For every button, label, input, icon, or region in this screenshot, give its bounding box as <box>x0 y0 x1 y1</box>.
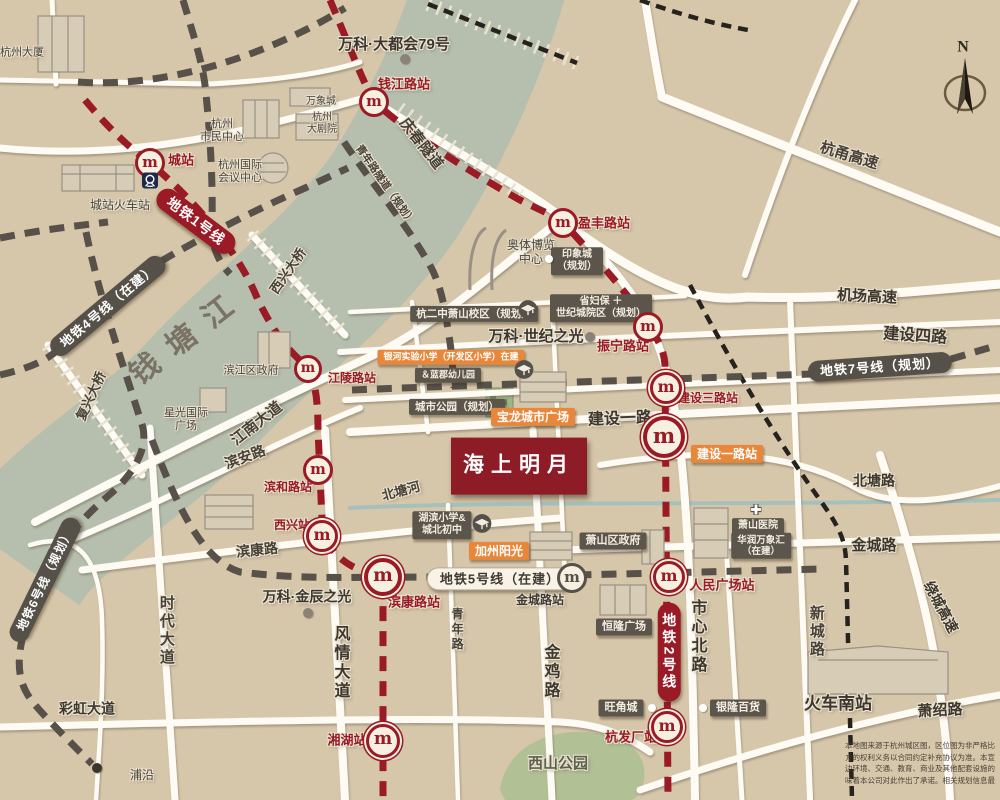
station-icon-qianjianglu: m <box>359 87 389 117</box>
metro-logo-glyph: m <box>142 155 158 170</box>
renmin-square-station-label: 人民广场站 <box>689 577 754 592</box>
wangjiaocheng-box: 旺角城 <box>599 700 644 717</box>
south-railway-station-label: 火车南站 <box>804 694 872 714</box>
caihong-avenue-label: 彩虹大道 <box>59 701 115 718</box>
binhe-station-label: 滨和路站 <box>264 480 312 494</box>
xincheng-road-label: 新城路 <box>807 605 825 659</box>
metro-logo-glyph: m <box>313 527 330 543</box>
station-icon-hangfachang: m <box>651 711 683 743</box>
poi-dot-wangjiaocheng <box>648 704 656 712</box>
yinhe-school-box: 银河实验小学（开发区小学）在建 <box>377 350 524 365</box>
metro-logo-glyph: m <box>657 379 674 395</box>
huarun-mixc-box: 华润万象汇 （在建） <box>731 533 791 559</box>
jianshe-1-road-label: 建设一路 <box>588 409 653 430</box>
station-icon-binhelu: m <box>303 455 333 485</box>
henglong-plaza-box: 恒隆广场 <box>596 619 652 636</box>
fengqing-avenue-label: 风情大道 <box>330 625 349 701</box>
metro-logo-glyph: m <box>374 731 392 748</box>
metro-logo-glyph: m <box>564 570 580 585</box>
shixin-north-road-label: 市心北路 <box>687 599 706 675</box>
beitang-road-label: 北塘路 <box>853 473 895 490</box>
station-icon-jianshesanlu: m <box>650 372 682 404</box>
intl-conference-label: 杭州国际 会议中心 <box>218 159 262 185</box>
xishan-park-label: 西山公园 <box>528 755 588 773</box>
compass-n-label: N <box>957 39 969 58</box>
jianshe-3-station-label: 建设三路站 <box>678 391 738 405</box>
metro-logo-glyph: m <box>366 94 382 109</box>
station-icon-xianghu: m <box>366 724 400 758</box>
yinxiangcheng-box: 印象城 （规划） <box>551 247 603 275</box>
station-icon-xixing: m <box>306 520 338 552</box>
chengzhan-station-label: 城站 <box>168 152 194 167</box>
mixc-label: 万象城 <box>306 96 336 108</box>
jinji-road-label: 金鸡路 <box>540 644 559 701</box>
line5-pill: 地铁5号线（在建） <box>427 567 573 590</box>
vanke-jinchen-label: 万科·金辰之光 <box>263 589 352 606</box>
jianshe-1-station-box: 建设一路站 <box>691 445 763 463</box>
hubin-school-box: 湖滨小学& 城北初中 <box>412 511 471 539</box>
railway-station-icon <box>142 173 158 194</box>
map-canvas: 杭州大厦城站城站火车站杭州 市民中心万象城杭州 大剧院杭州国际 会议中心万科·大… <box>0 0 1000 800</box>
vanke-century-label: 万科·世纪之光 <box>489 328 584 346</box>
compass-icon <box>945 58 985 114</box>
citizen-center-label: 杭州 市民中心 <box>200 118 244 144</box>
station-icon-binkanglu: m <box>364 558 402 596</box>
yingfeng-station-label: 盈丰路站 <box>578 215 630 230</box>
lanjun-kindergarten-box: ＆蓝郡幼儿园 <box>415 368 481 383</box>
station-icon-jiansheyilu: m <box>643 416 685 458</box>
xianghu-station-label: 湘湖站 <box>327 732 366 747</box>
chengzhan-railway-label: 城站火车站 <box>90 198 150 212</box>
baolong-plaza-box: 宝龙城市广场 <box>491 408 575 426</box>
poi-dot-vanke-metropolis <box>400 54 410 64</box>
yinlong-store-box: 银隆百货 <box>710 700 766 717</box>
project-name-box: 海上明月 <box>451 438 587 495</box>
metro-logo-glyph: m <box>301 362 315 376</box>
jincheng-road-label: 金城路 <box>851 537 896 555</box>
metro-logo-glyph: m <box>653 425 675 446</box>
metro-logo-glyph: m <box>658 718 675 734</box>
puyan-label: 浦沿 <box>130 768 154 782</box>
poi-dot-aoti <box>545 255 553 263</box>
poi-dot-yinlong <box>699 704 707 712</box>
metro-logo-glyph: m <box>310 462 326 477</box>
metro-logo-glyph: m <box>373 567 393 586</box>
metro-logo-glyph: m <box>555 215 571 230</box>
xiaoshan-government-box: 萧山区政府 <box>580 533 647 550</box>
xixing-station-label: 西兴站 <box>274 518 310 532</box>
california-sunshine-box: 加州阳光 <box>469 542 529 560</box>
qingnian-road-label: 青年路 <box>450 608 464 653</box>
xiaoshao-road-label: 萧绍路 <box>917 701 963 721</box>
station-icon-yingfenglu: m <box>548 208 578 238</box>
shidai-avenue-label: 时代大道 <box>157 595 175 667</box>
poi-dot-puyan <box>92 763 102 773</box>
metro-logo-glyph: m <box>640 319 656 334</box>
poi-dot-vanke-century <box>585 332 595 342</box>
jiangling-station-label: 江陵路站 <box>328 371 376 385</box>
station-icon-zhenninglu: m <box>633 312 663 342</box>
binjiang-government-label: 滨江区政府 <box>224 365 279 378</box>
disclaimer-text: 本地图来源于杭州城区图，区位图为非严格比 方的权利义务以合同约定补充协议为准。本… <box>845 740 1000 787</box>
school-icon-hangergzhong <box>518 300 538 325</box>
binkang-station-label: 滨康路站 <box>388 594 440 609</box>
station-icon-renminguangchang: m <box>653 561 685 593</box>
vanke-metropolis-label: 万科·大都会79号 <box>338 36 450 54</box>
xingguang-plaza-label: 星光国际 广场 <box>164 407 208 433</box>
station-icon-jinchenglu: m <box>557 563 587 593</box>
metro-logo-glyph: m <box>660 568 677 584</box>
station-icon-jianglinglu: m <box>294 355 322 383</box>
hangfachang-station-label: 杭发厂站 <box>605 729 657 744</box>
qianjiang-road-station-label: 钱江路站 <box>378 76 430 91</box>
poi-dot-vanke-jinchen <box>303 608 313 618</box>
airport-expressway-label: 机场高速 <box>837 287 898 308</box>
line2-pill: 地铁2号线 <box>658 603 681 702</box>
school-icon-hubin <box>472 514 492 539</box>
school-icon-yinhe <box>514 360 534 385</box>
hangzhou-tower-label: 杭州大厦 <box>0 47 44 60</box>
hospital-cross-icon <box>750 503 763 521</box>
jincheng-station-label: 金城路站 <box>516 593 564 607</box>
grand-theatre-label: 杭州 大剧院 <box>307 112 337 136</box>
